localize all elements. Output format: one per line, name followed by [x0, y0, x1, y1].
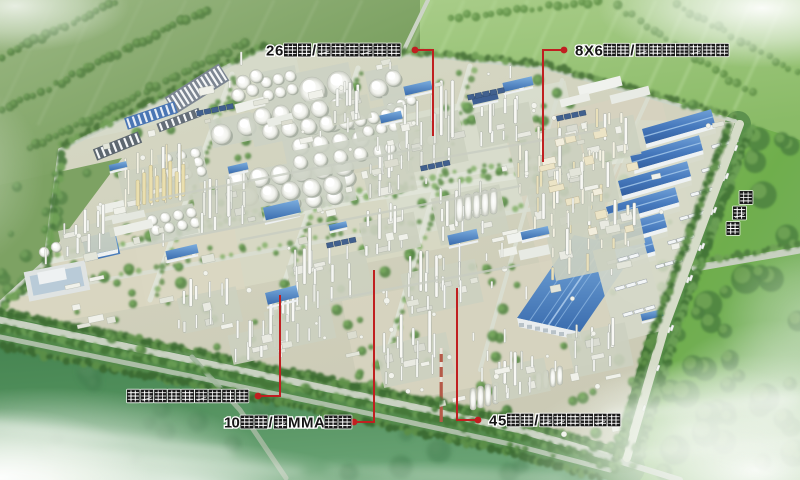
svg-text:X: X: [584, 42, 594, 59]
svg-text:5: 5: [498, 412, 506, 429]
svg-text:M: M: [288, 414, 301, 431]
svg-text:6: 6: [595, 42, 603, 59]
svg-text:0: 0: [232, 414, 240, 431]
svg-text:8: 8: [575, 42, 583, 59]
svg-text:M: M: [301, 414, 314, 431]
svg-text:2: 2: [266, 42, 274, 59]
svg-text:A: A: [314, 414, 325, 431]
svg-text:4: 4: [489, 412, 498, 429]
svg-text:6: 6: [275, 42, 283, 59]
